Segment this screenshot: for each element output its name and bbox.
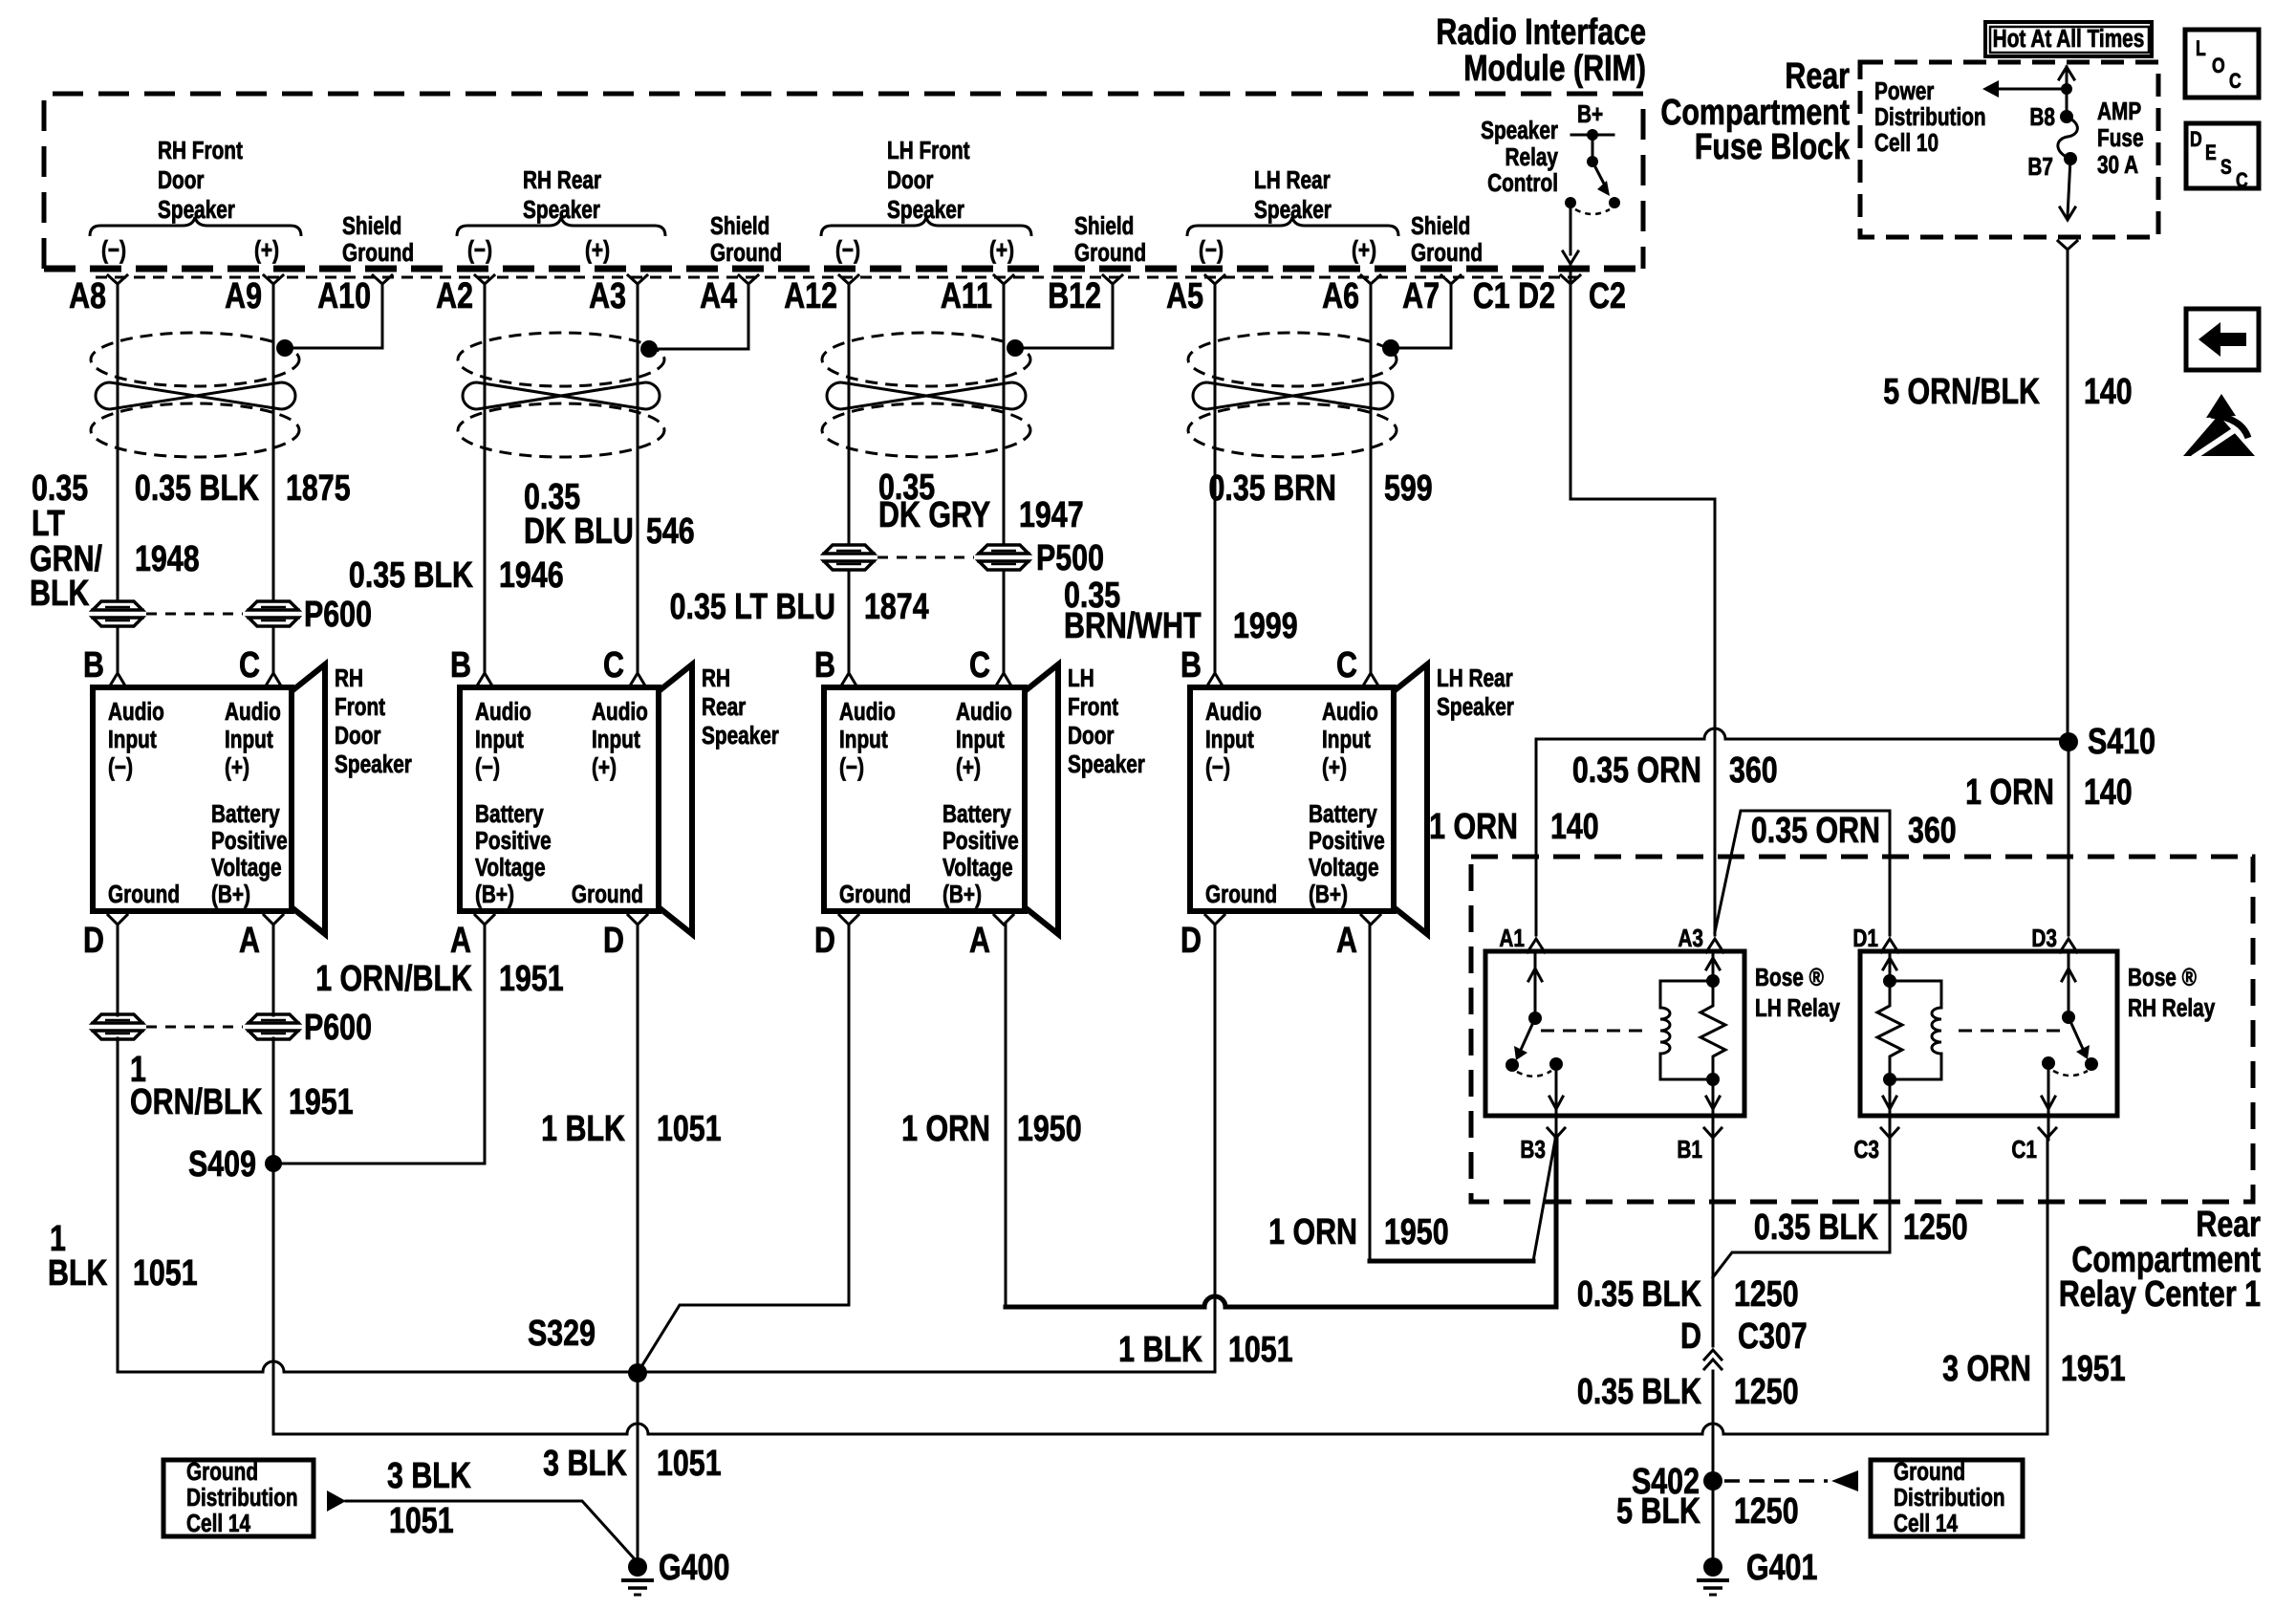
svg-text:L: L (2196, 37, 2206, 60)
svg-text:LH Rear: LH Rear (1437, 664, 1513, 692)
svg-text:Ground: Ground (108, 881, 180, 908)
svg-text:E: E (2205, 141, 2217, 164)
svg-text:B1: B1 (1677, 1136, 1702, 1164)
svg-text:0.35 BLK: 0.35 BLK (349, 555, 473, 596)
svg-text:D3: D3 (2031, 925, 2057, 952)
svg-text:A: A (1336, 921, 1357, 961)
svg-text:0.35 BLK: 0.35 BLK (135, 468, 259, 509)
svg-text:1875: 1875 (286, 468, 351, 509)
svg-text:Voltage: Voltage (211, 854, 282, 881)
svg-text:C1: C1 (2011, 1136, 2037, 1164)
svg-text:3 BLK: 3 BLK (543, 1444, 627, 1484)
svg-text:D: D (2190, 128, 2202, 151)
svg-text:0.35 ORN: 0.35 ORN (1572, 751, 1701, 791)
svg-text:(−): (−) (101, 236, 126, 264)
svg-text:RH: RH (702, 664, 730, 692)
svg-text:LH Front: LH Front (887, 137, 970, 164)
svg-text:0.35 ORN: 0.35 ORN (1751, 811, 1880, 851)
svg-text:1 ORN: 1 ORN (901, 1109, 990, 1149)
svg-text:(−): (−) (1199, 236, 1224, 264)
svg-text:A: A (450, 921, 471, 961)
svg-text:LH Relay: LH Relay (1755, 994, 1840, 1022)
svg-text:D: D (1180, 921, 1202, 961)
svg-text:0.35 BLK: 0.35 BLK (1577, 1372, 1701, 1412)
svg-text:Battery: Battery (1309, 800, 1377, 828)
svg-text:5 BLK: 5 BLK (1616, 1491, 1700, 1532)
svg-text:1 BLK: 1 BLK (541, 1109, 625, 1149)
svg-text:C3: C3 (1853, 1136, 1879, 1164)
svg-text:B: B (450, 645, 471, 685)
svg-text:DK GRY: DK GRY (878, 495, 990, 535)
svg-text:ORN/BLK: ORN/BLK (130, 1082, 263, 1122)
svg-text:Voltage: Voltage (942, 854, 1013, 881)
svg-text:D: D (83, 921, 104, 961)
svg-text:Control: Control (1487, 169, 1558, 197)
svg-text:Door: Door (335, 722, 381, 750)
svg-text:A1: A1 (1499, 925, 1525, 952)
svg-text:C1 D2: C1 D2 (1473, 276, 1555, 316)
svg-text:(−): (−) (475, 753, 500, 781)
svg-text:Cell 14: Cell 14 (1894, 1510, 1958, 1537)
svg-text:Ground: Ground (342, 239, 414, 267)
svg-text:C: C (2236, 169, 2248, 192)
svg-text:(B+): (B+) (475, 881, 514, 908)
svg-text:Input: Input (839, 726, 888, 753)
svg-text:Ground: Ground (1074, 239, 1146, 267)
svg-text:D: D (1680, 1316, 1701, 1357)
svg-text:B7: B7 (2027, 153, 2053, 181)
svg-text:360: 360 (1908, 811, 1957, 851)
svg-text:(+): (+) (592, 753, 617, 781)
svg-text:G401: G401 (1746, 1548, 1817, 1588)
svg-text:(+): (+) (1322, 753, 1347, 781)
svg-text:1874: 1874 (864, 587, 929, 627)
svg-text:Module (RIM): Module (RIM) (1463, 49, 1646, 89)
svg-text:1 BLK: 1 BLK (1118, 1330, 1202, 1370)
svg-text:Audio: Audio (475, 698, 531, 726)
svg-text:A9: A9 (225, 276, 262, 316)
svg-text:1051: 1051 (133, 1253, 198, 1294)
svg-text:Rear: Rear (2196, 1205, 2261, 1245)
svg-text:Battery: Battery (475, 800, 544, 828)
svg-text:(−): (−) (1205, 753, 1230, 781)
svg-text:Input: Input (956, 726, 1005, 753)
svg-text:Voltage: Voltage (475, 854, 546, 881)
svg-text:Battery: Battery (211, 800, 280, 828)
svg-text:C2: C2 (1589, 276, 1626, 316)
svg-text:1946: 1946 (499, 555, 564, 596)
svg-text:C: C (603, 645, 624, 685)
svg-text:Audio: Audio (592, 698, 648, 726)
svg-text:Ground: Ground (1205, 881, 1277, 908)
svg-text:Positive: Positive (475, 827, 552, 855)
svg-text:Shield: Shield (710, 212, 769, 240)
svg-text:Fuse: Fuse (2097, 124, 2144, 152)
svg-text:Ground: Ground (186, 1458, 258, 1486)
svg-text:1951: 1951 (2061, 1349, 2126, 1389)
svg-text:Voltage: Voltage (1309, 854, 1379, 881)
svg-text:Speaker: Speaker (1437, 693, 1514, 721)
svg-text:DK BLU: DK BLU (524, 511, 634, 552)
svg-text:Input: Input (475, 726, 524, 753)
svg-text:B: B (83, 645, 104, 685)
svg-text:Ground: Ground (572, 881, 643, 908)
svg-text:Rear: Rear (1785, 56, 1850, 97)
svg-text:Cell 10: Cell 10 (1874, 129, 1939, 157)
svg-text:(B+): (B+) (1309, 881, 1348, 908)
svg-text:Ground: Ground (1894, 1458, 1965, 1486)
svg-text:Positive: Positive (211, 827, 288, 855)
svg-text:(+): (+) (989, 236, 1014, 264)
svg-text:1051: 1051 (657, 1444, 722, 1484)
svg-text:A: A (969, 921, 990, 961)
svg-text:(+): (+) (254, 236, 279, 264)
svg-text:Positive: Positive (942, 827, 1019, 855)
svg-text:Input: Input (108, 726, 157, 753)
svg-text:B3: B3 (1520, 1136, 1546, 1164)
svg-text:Shield: Shield (342, 212, 401, 240)
svg-text:P600: P600 (304, 595, 372, 635)
svg-text:C: C (239, 645, 260, 685)
svg-text:Distribution: Distribution (1874, 103, 1986, 131)
svg-text:1250: 1250 (1734, 1491, 1799, 1532)
svg-text:Speaker: Speaker (1068, 751, 1145, 778)
svg-text:S: S (2220, 156, 2232, 179)
svg-text:3 ORN: 3 ORN (1942, 1349, 2031, 1389)
svg-text:Audio: Audio (108, 698, 164, 726)
svg-text:Positive: Positive (1309, 827, 1385, 855)
svg-text:Audio: Audio (1205, 698, 1262, 726)
svg-text:Door: Door (1068, 722, 1115, 750)
svg-text:A11: A11 (941, 276, 992, 316)
svg-text:LT: LT (32, 504, 65, 544)
svg-text:Power: Power (1874, 77, 1934, 105)
svg-text:Relay: Relay (1505, 143, 1558, 171)
svg-text:Audio: Audio (956, 698, 1012, 726)
svg-text:B12: B12 (1048, 276, 1101, 316)
svg-text:0.35 BLK: 0.35 BLK (1577, 1274, 1701, 1315)
svg-text:C: C (1336, 645, 1357, 685)
svg-text:C: C (2229, 70, 2242, 93)
svg-text:140: 140 (2084, 772, 2133, 813)
svg-text:A: A (239, 921, 260, 961)
svg-text:Input: Input (225, 726, 273, 753)
svg-text:B: B (1180, 645, 1202, 685)
svg-text:140: 140 (2084, 372, 2133, 412)
svg-text:(B+): (B+) (211, 881, 250, 908)
svg-text:(B+): (B+) (942, 881, 982, 908)
svg-text:1947: 1947 (1019, 495, 1084, 535)
svg-text:Ground: Ground (1411, 239, 1483, 267)
svg-text:Audio: Audio (839, 698, 896, 726)
svg-text:(+): (+) (1352, 236, 1376, 264)
svg-text:RH: RH (335, 664, 363, 692)
svg-text:AMP: AMP (2097, 98, 2141, 125)
svg-text:(−): (−) (108, 753, 133, 781)
svg-text:A12: A12 (784, 276, 837, 316)
svg-text:Door: Door (158, 166, 205, 194)
svg-text:S409: S409 (188, 1144, 256, 1185)
svg-text:Relay Center 1: Relay Center 1 (2059, 1274, 2261, 1315)
svg-text:A5: A5 (1166, 276, 1203, 316)
svg-text:Door: Door (887, 166, 934, 194)
svg-text:1951: 1951 (289, 1082, 354, 1122)
svg-text:140: 140 (1550, 807, 1599, 847)
svg-text:D: D (814, 921, 835, 961)
svg-text:D: D (603, 921, 624, 961)
svg-text:0.35 LT BLU: 0.35 LT BLU (670, 587, 835, 627)
svg-text:Front: Front (1068, 693, 1118, 721)
svg-text:1051: 1051 (389, 1501, 454, 1541)
svg-text:1 ORN: 1 ORN (1965, 772, 2054, 813)
svg-text:1950: 1950 (1017, 1109, 1082, 1149)
svg-text:LH Rear: LH Rear (1254, 166, 1331, 194)
svg-text:O: O (2212, 54, 2225, 77)
svg-text:Radio Interface: Radio Interface (1436, 12, 1646, 53)
svg-text:Shield: Shield (1074, 212, 1134, 240)
svg-text:BLK: BLK (30, 574, 90, 614)
svg-text:P600: P600 (304, 1008, 372, 1048)
svg-text:C307: C307 (1738, 1316, 1808, 1357)
svg-text:Bose ®: Bose ® (2128, 964, 2197, 991)
svg-text:Rear: Rear (702, 693, 746, 721)
svg-text:Speaker: Speaker (335, 751, 412, 778)
svg-text:0.35: 0.35 (32, 468, 88, 509)
svg-text:Ground: Ground (839, 881, 911, 908)
svg-text:B8: B8 (2029, 103, 2055, 131)
svg-text:G400: G400 (659, 1548, 729, 1588)
svg-text:1051: 1051 (657, 1109, 722, 1149)
svg-text:Shield: Shield (1411, 212, 1470, 240)
svg-text:1999: 1999 (1233, 606, 1298, 646)
svg-text:Front: Front (335, 693, 385, 721)
svg-text:Fuse Block: Fuse Block (1695, 127, 1851, 167)
svg-text:360: 360 (1729, 751, 1778, 791)
svg-text:A4: A4 (700, 276, 737, 316)
svg-text:546: 546 (646, 511, 695, 552)
svg-text:RH Rear: RH Rear (523, 166, 601, 194)
svg-text:1250: 1250 (1734, 1372, 1799, 1412)
svg-text:599: 599 (1384, 468, 1433, 509)
svg-text:RH Front: RH Front (158, 137, 243, 164)
svg-text:1948: 1948 (135, 539, 200, 579)
svg-text:1951: 1951 (499, 959, 564, 999)
svg-text:B+: B+ (1577, 100, 1603, 128)
svg-text:(+): (+) (225, 753, 249, 781)
svg-text:Speaker: Speaker (702, 722, 779, 750)
svg-text:Audio: Audio (1322, 698, 1378, 726)
svg-text:0.35 BRN: 0.35 BRN (1209, 468, 1336, 509)
svg-text:Hot At All Times: Hot At All Times (1993, 25, 2145, 53)
svg-text:1 ORN: 1 ORN (1268, 1212, 1357, 1252)
svg-text:1051: 1051 (1228, 1330, 1293, 1370)
svg-text:BLK: BLK (48, 1253, 108, 1294)
svg-text:A7: A7 (1402, 276, 1440, 316)
svg-text:Input: Input (1322, 726, 1371, 753)
svg-text:30 A: 30 A (2097, 151, 2138, 179)
svg-text:C: C (969, 645, 990, 685)
svg-text:Distribution: Distribution (1894, 1484, 2005, 1512)
svg-text:D1: D1 (1852, 925, 1878, 952)
svg-text:S410: S410 (2088, 722, 2155, 762)
svg-text:1250: 1250 (1903, 1207, 1968, 1248)
svg-text:S329: S329 (528, 1314, 596, 1354)
svg-text:(+): (+) (585, 236, 610, 264)
svg-text:Battery: Battery (942, 800, 1011, 828)
svg-text:1 ORN: 1 ORN (1429, 807, 1518, 847)
svg-text:A6: A6 (1322, 276, 1359, 316)
svg-text:Cell 14: Cell 14 (186, 1510, 250, 1537)
svg-text:Input: Input (592, 726, 640, 753)
svg-text:0.35 BLK: 0.35 BLK (1754, 1207, 1878, 1248)
svg-text:P500: P500 (1036, 538, 1104, 578)
svg-text:A3: A3 (589, 276, 626, 316)
svg-text:Bose ®: Bose ® (1755, 964, 1824, 991)
svg-text:LH: LH (1068, 664, 1094, 692)
svg-text:A8: A8 (69, 276, 106, 316)
svg-text:A3: A3 (1678, 925, 1703, 952)
svg-text:(−): (−) (835, 236, 860, 264)
svg-text:5 ORN/BLK: 5 ORN/BLK (1883, 372, 2040, 412)
svg-text:1250: 1250 (1734, 1274, 1799, 1315)
svg-text:3 BLK: 3 BLK (387, 1456, 471, 1496)
svg-text:BRN/WHT: BRN/WHT (1064, 606, 1202, 646)
svg-text:Audio: Audio (225, 698, 281, 726)
svg-text:A10: A10 (317, 276, 371, 316)
svg-text:(−): (−) (839, 753, 864, 781)
svg-text:Ground: Ground (710, 239, 782, 267)
svg-text:A2: A2 (436, 276, 473, 316)
svg-text:(+): (+) (956, 753, 981, 781)
svg-text:1 ORN/BLK: 1 ORN/BLK (315, 959, 472, 999)
svg-text:Distribution: Distribution (186, 1484, 298, 1512)
svg-text:RH Relay: RH Relay (2128, 994, 2215, 1022)
svg-text:1950: 1950 (1384, 1212, 1449, 1252)
svg-text:Input: Input (1205, 726, 1254, 753)
svg-text:(−): (−) (467, 236, 492, 264)
svg-text:B: B (814, 645, 835, 685)
svg-text:Speaker: Speaker (1481, 117, 1558, 144)
